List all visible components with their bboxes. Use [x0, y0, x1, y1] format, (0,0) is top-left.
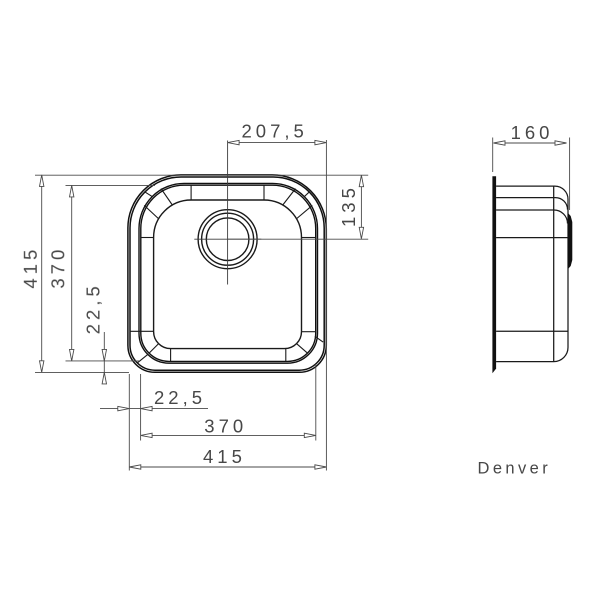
svg-text:370: 370 [204, 416, 247, 437]
svg-text:207,5: 207,5 [242, 120, 308, 141]
svg-text:415: 415 [20, 246, 41, 289]
svg-text:135: 135 [338, 184, 359, 227]
svg-text:370: 370 [47, 246, 68, 289]
svg-text:22,5: 22,5 [83, 282, 104, 334]
svg-text:415: 415 [203, 446, 246, 467]
svg-text:Denver: Denver [478, 460, 552, 478]
svg-text:22,5: 22,5 [154, 387, 206, 408]
svg-text:160: 160 [511, 122, 554, 143]
